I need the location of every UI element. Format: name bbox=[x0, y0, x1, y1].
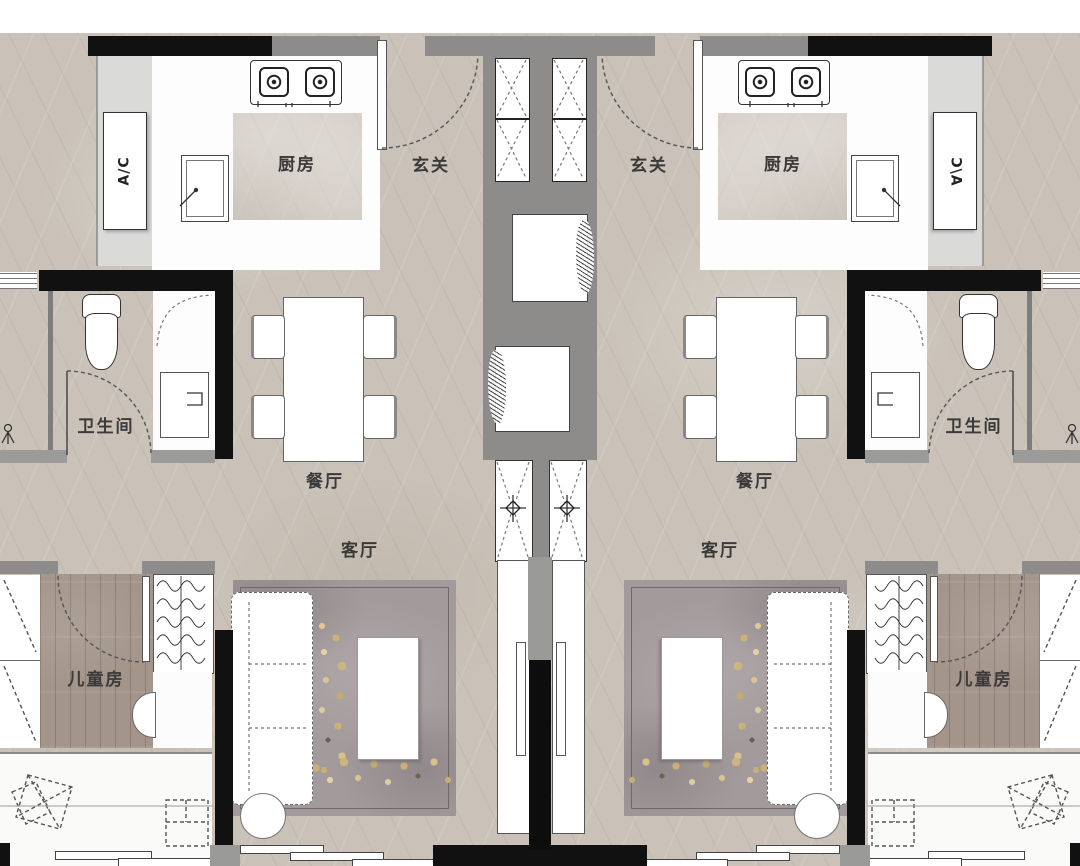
dining-table bbox=[283, 297, 364, 462]
entry-door-leaf bbox=[693, 40, 703, 150]
bathroom-label: 卫生间 bbox=[56, 414, 156, 440]
kids-door-leaf bbox=[930, 576, 938, 662]
exterior-wall bbox=[808, 36, 992, 56]
kitchen-label: 厨房 bbox=[731, 152, 835, 178]
wardrobe bbox=[153, 574, 214, 674]
kids-room-floor bbox=[153, 672, 212, 748]
sliding-door bbox=[352, 859, 435, 866]
bathroom-partition bbox=[48, 291, 53, 457]
exterior-wall-bottom bbox=[433, 845, 540, 866]
door-track bbox=[516, 642, 526, 756]
dining-chair bbox=[683, 395, 717, 439]
shower-head-icon bbox=[1066, 425, 1078, 445]
living-label: 客厅 bbox=[310, 538, 410, 566]
kids-room-wall bbox=[1022, 561, 1080, 574]
foyer-label: 玄关 bbox=[609, 153, 689, 181]
sliding-closet bbox=[1039, 575, 1080, 748]
stove-icon bbox=[738, 60, 830, 105]
bathroom-sill bbox=[1013, 450, 1080, 463]
wall-step bbox=[210, 845, 240, 866]
bathroom-wall-right bbox=[847, 291, 865, 459]
wardrobe bbox=[866, 574, 927, 674]
wall-corner bbox=[1070, 843, 1080, 866]
stove-icon bbox=[250, 60, 342, 105]
floor-plan: A/C 厨房 玄关 卫生间 餐厅 客厅 bbox=[0, 0, 1080, 866]
door-track bbox=[556, 642, 566, 756]
balcony-floor bbox=[0, 752, 212, 866]
dining-chair bbox=[363, 395, 397, 439]
edge-window bbox=[0, 272, 37, 289]
ac-unit: A/C bbox=[103, 112, 147, 230]
entry-door-leaf bbox=[377, 40, 387, 150]
bathroom-sill bbox=[0, 450, 67, 463]
duct-hatch bbox=[576, 220, 594, 294]
bathroom-sill bbox=[151, 450, 215, 463]
exterior-wall bbox=[88, 36, 272, 56]
kids-room-wall bbox=[0, 561, 58, 574]
edge-window bbox=[1043, 272, 1080, 289]
balcony-floor bbox=[868, 752, 1080, 866]
ac-label: A/C bbox=[117, 156, 133, 185]
sofa bbox=[767, 592, 849, 805]
dining-chair bbox=[251, 315, 285, 359]
bathroom-label: 卫生间 bbox=[924, 414, 1024, 440]
bathroom-wall bbox=[39, 270, 233, 291]
kids-room-wall bbox=[142, 561, 215, 574]
dining-table bbox=[716, 297, 797, 462]
sink-icon bbox=[851, 155, 899, 222]
shower-tray-icon bbox=[871, 372, 920, 438]
party-wall-segment bbox=[847, 630, 865, 846]
sliding-door bbox=[863, 858, 962, 866]
core-wall bbox=[425, 36, 655, 56]
party-wall bbox=[529, 660, 551, 850]
exterior-wall-gray bbox=[700, 36, 808, 56]
wall-step bbox=[840, 845, 870, 866]
elevator-shaft bbox=[552, 58, 587, 182]
ac-unit: A/C bbox=[933, 112, 977, 230]
dining-label: 餐厅 bbox=[705, 469, 805, 497]
living-label: 客厅 bbox=[670, 538, 770, 566]
bathroom-wall-right bbox=[215, 291, 233, 459]
dining-chair bbox=[795, 315, 829, 359]
kids-room-wall bbox=[865, 561, 938, 574]
elevator-shaft bbox=[495, 58, 530, 182]
bathroom-partition bbox=[1027, 291, 1032, 457]
kids-room-floor bbox=[868, 672, 927, 748]
exterior-wall-bottom bbox=[540, 845, 647, 866]
kids-door-leaf bbox=[142, 576, 150, 662]
kids-room-label: 儿童房 bbox=[934, 667, 1034, 693]
party-wall bbox=[528, 557, 552, 660]
kitchen-label: 厨房 bbox=[245, 152, 349, 178]
core-wall bbox=[531, 450, 549, 562]
dining-chair bbox=[363, 315, 397, 359]
sliding-door bbox=[118, 858, 217, 866]
sliding-door bbox=[645, 859, 728, 866]
sliding-closet bbox=[0, 575, 41, 748]
duct-box bbox=[495, 346, 570, 432]
coffee-table bbox=[357, 637, 419, 760]
unit-right: A/C 厨房 玄关 卫生间 餐厅 客厅 bbox=[540, 0, 1080, 866]
foyer-label: 玄关 bbox=[391, 153, 471, 181]
unit-left: A/C 厨房 玄关 卫生间 餐厅 客厅 bbox=[0, 0, 540, 866]
shower-tray-icon bbox=[160, 372, 209, 438]
kids-room-label: 儿童房 bbox=[46, 667, 146, 693]
dining-label: 餐厅 bbox=[275, 469, 375, 497]
vent-shaft bbox=[549, 460, 587, 562]
bathroom-wall bbox=[847, 270, 1041, 291]
toilet-bowl-icon bbox=[85, 313, 118, 370]
sink-icon bbox=[181, 155, 229, 222]
dining-chair bbox=[795, 395, 829, 439]
burner-icon bbox=[305, 67, 335, 97]
dining-chair bbox=[251, 395, 285, 439]
dining-chair bbox=[683, 315, 717, 359]
bathroom-sill bbox=[865, 450, 929, 463]
ac-label: A/C bbox=[947, 156, 963, 185]
toilet-bowl-icon bbox=[962, 313, 995, 370]
side-table bbox=[794, 793, 840, 839]
burner-icon bbox=[791, 67, 821, 97]
duct-hatch bbox=[488, 350, 506, 424]
vent-shaft bbox=[495, 460, 533, 562]
coffee-table bbox=[661, 637, 723, 760]
exterior-wall-gray bbox=[272, 36, 380, 56]
sofa bbox=[231, 592, 313, 805]
side-table bbox=[240, 793, 286, 839]
shower-head-icon bbox=[2, 425, 14, 445]
burner-icon bbox=[259, 67, 289, 97]
wall-corner bbox=[0, 843, 10, 866]
burner-icon bbox=[745, 67, 775, 97]
party-wall-segment bbox=[215, 630, 233, 846]
